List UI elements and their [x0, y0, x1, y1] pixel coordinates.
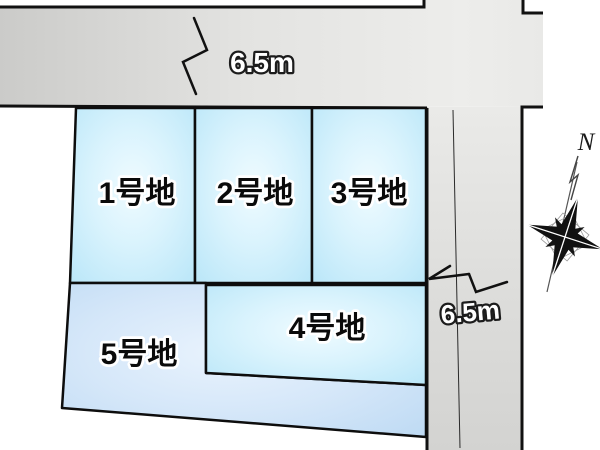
plot-2-label: 2号地	[217, 177, 294, 210]
plot-1-label: 1号地	[99, 177, 176, 210]
top-road-width-label: 6.5m	[230, 47, 294, 78]
plot-3-label: 3号地	[331, 177, 408, 210]
site-plan-diagram: 1号地 2号地 3号地 4号地 5号地 6.5m 6.5m N	[0, 0, 600, 450]
site-plan-canvas: 1号地 2号地 3号地 4号地 5号地 6.5m 6.5m N	[0, 0, 600, 450]
compass-north-label: N	[577, 129, 596, 156]
plot-5-label: 5号地	[101, 338, 178, 371]
plot-4-label: 4号地	[289, 312, 366, 345]
right-road-width-label: 6.5m	[439, 295, 501, 330]
